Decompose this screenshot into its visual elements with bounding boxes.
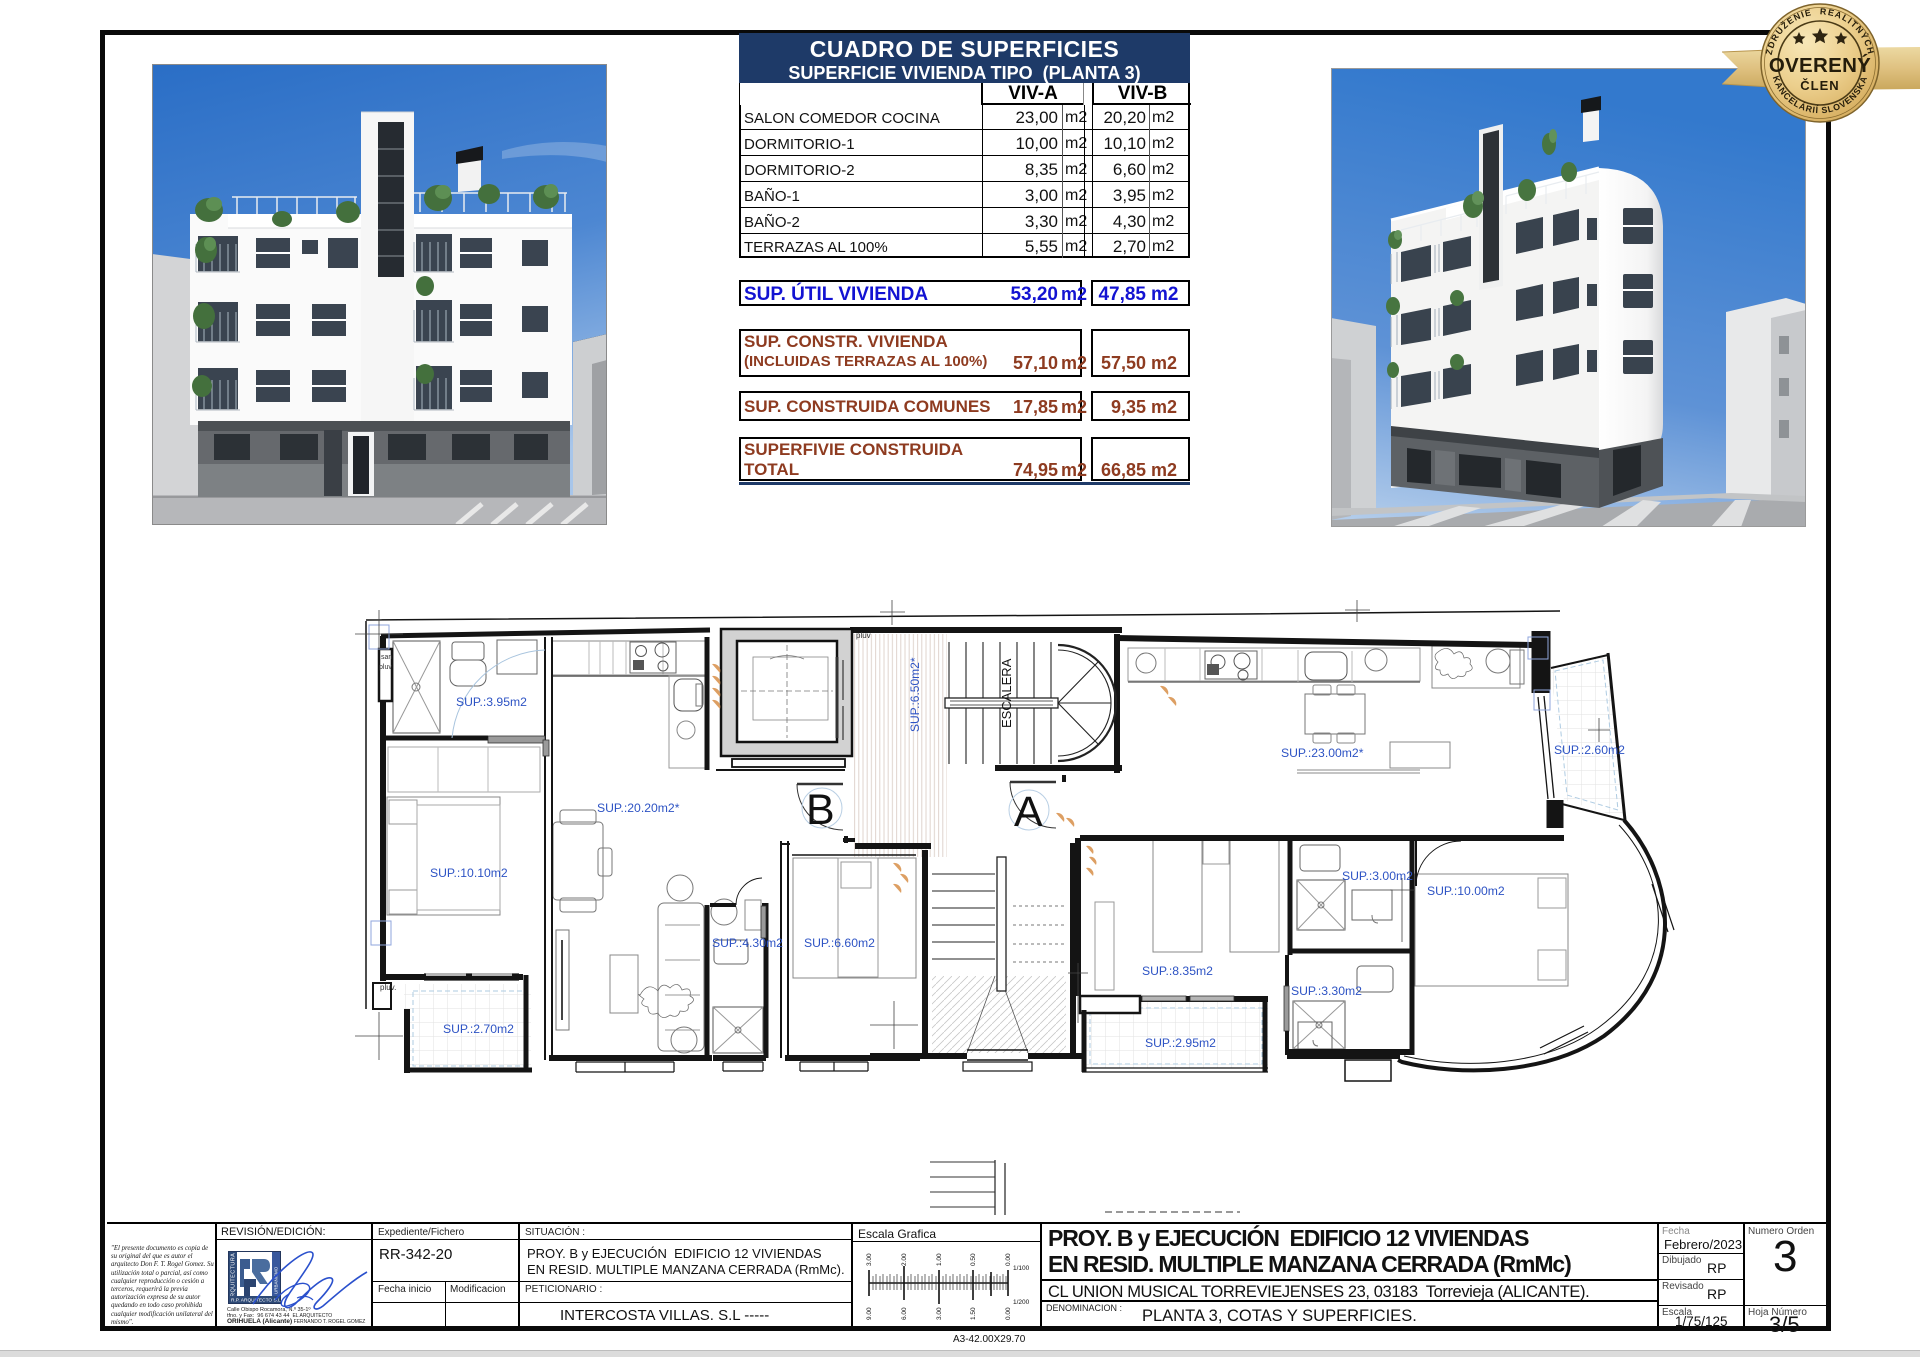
svg-text:ESCALERA: ESCALERA (999, 658, 1014, 728)
svg-text:3.00: 3.00 (866, 1253, 873, 1266)
svg-text:SUP.:6.50m2*: SUP.:6.50m2* (908, 657, 922, 732)
svg-text:B: B (806, 786, 835, 834)
svg-text:SUP.:2.60m2: SUP.:2.60m2 (1554, 743, 1625, 757)
svg-text:1.50: 1.50 (970, 1307, 977, 1320)
svg-text:OVERENÝ: OVERENÝ (1769, 53, 1871, 77)
svg-text:SUP.:8.35m2: SUP.:8.35m2 (1142, 964, 1213, 978)
svg-text:1.00: 1.00 (936, 1253, 943, 1266)
svg-text:0.00: 0.00 (1005, 1253, 1012, 1266)
svg-text:SUP.:2.95m2: SUP.:2.95m2 (1145, 1036, 1216, 1050)
svg-text:6.00: 6.00 (901, 1307, 908, 1320)
svg-text:SUP.:3.30m2: SUP.:3.30m2 (1291, 984, 1362, 998)
svg-text:pluv: pluv (379, 664, 392, 671)
svg-text:3.00: 3.00 (936, 1307, 943, 1320)
svg-text:pluv.: pluv. (380, 983, 396, 992)
svg-text:SUP.:2.70m2: SUP.:2.70m2 (443, 1022, 514, 1036)
svg-text:san: san (381, 654, 392, 661)
svg-text:ČLEN: ČLEN (1800, 78, 1839, 93)
svg-text:SUP.:20.20m2*: SUP.:20.20m2* (597, 801, 680, 815)
svg-text:SUP.:3.95m2: SUP.:3.95m2 (456, 695, 527, 709)
svg-text:9.00: 9.00 (866, 1307, 873, 1320)
svg-text:SUP.:10.10m2: SUP.:10.10m2 (430, 866, 508, 880)
svg-text:1/200: 1/200 (1013, 1299, 1030, 1306)
svg-text:ARQUITECTURA: ARQUITECTURA (231, 1253, 237, 1301)
svg-text:0.50: 0.50 (970, 1253, 977, 1266)
svg-text:SUP.:3.00m2: SUP.:3.00m2 (1342, 869, 1413, 883)
svg-text:A: A (1014, 788, 1043, 836)
svg-text:SUP.:10.00m2: SUP.:10.00m2 (1427, 884, 1505, 898)
svg-text:SUP.:23.00m2*: SUP.:23.00m2* (1281, 746, 1364, 760)
svg-text:SUP.:6.60m2: SUP.:6.60m2 (804, 936, 875, 950)
svg-text:0.00: 0.00 (1005, 1307, 1012, 1320)
svg-text:1/100: 1/100 (1013, 1265, 1030, 1272)
svg-text:pluv: pluv (856, 631, 871, 640)
svg-text:SUP.:4.30m2: SUP.:4.30m2 (712, 936, 783, 950)
svg-text:2.00: 2.00 (901, 1253, 908, 1266)
